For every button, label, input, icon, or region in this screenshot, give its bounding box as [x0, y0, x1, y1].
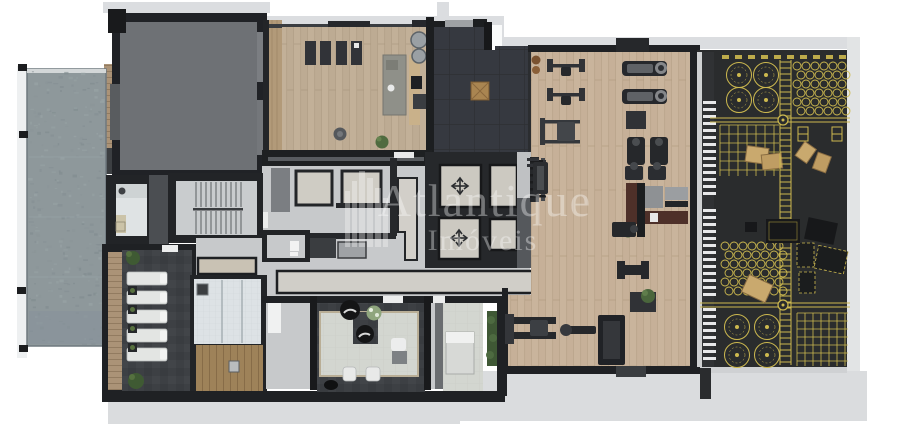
- svg-text:Imóveis: Imóveis: [428, 224, 539, 257]
- svg-text:Atlantique: Atlantique: [378, 175, 592, 226]
